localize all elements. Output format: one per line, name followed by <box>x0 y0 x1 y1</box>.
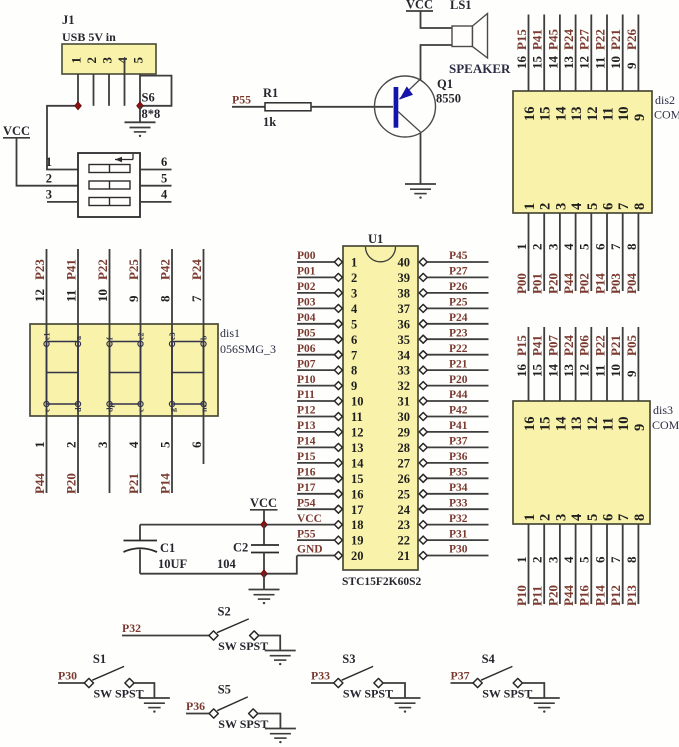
svg-text:35: 35 <box>398 333 411 347</box>
svg-text:9: 9 <box>624 370 639 377</box>
svg-text:S1: S1 <box>93 652 106 666</box>
svg-text:C1: C1 <box>160 541 175 555</box>
svg-text:P41: P41 <box>530 29 545 50</box>
svg-text:13: 13 <box>351 441 364 455</box>
svg-text:5: 5 <box>131 57 146 64</box>
svg-text:6: 6 <box>592 243 607 250</box>
svg-text:e2: e2 <box>137 332 146 340</box>
svg-text:e1: e1 <box>43 332 52 340</box>
svg-text:5: 5 <box>577 243 592 250</box>
svg-text:P15: P15 <box>297 451 316 463</box>
svg-text:P41: P41 <box>63 259 78 280</box>
svg-text:P36: P36 <box>186 699 205 713</box>
svg-text:5: 5 <box>351 317 357 331</box>
svg-text:18: 18 <box>351 518 364 532</box>
svg-text:5: 5 <box>161 172 167 186</box>
svg-text:10: 10 <box>616 107 632 122</box>
svg-text:7: 7 <box>616 514 632 521</box>
svg-text:e: e <box>43 408 52 412</box>
svg-text:P31: P31 <box>449 528 468 540</box>
svg-text:S2: S2 <box>218 605 231 619</box>
svg-text:33: 33 <box>398 364 411 378</box>
svg-text:36: 36 <box>398 317 411 331</box>
svg-text:P30: P30 <box>449 544 468 556</box>
svg-text:P27: P27 <box>449 266 468 278</box>
svg-text:39: 39 <box>398 271 411 285</box>
svg-text:29: 29 <box>398 426 411 440</box>
svg-text:SW SPST: SW SPST <box>94 687 144 701</box>
svg-text:P45: P45 <box>545 29 560 50</box>
svg-text:P22: P22 <box>592 335 607 356</box>
svg-text:9: 9 <box>126 295 141 302</box>
svg-text:9: 9 <box>632 114 648 121</box>
svg-text:11: 11 <box>592 57 607 69</box>
svg-text:P05: P05 <box>297 327 316 339</box>
svg-text:P34: P34 <box>449 482 468 494</box>
svg-text:10UF: 10UF <box>158 557 188 571</box>
svg-text:1: 1 <box>351 256 357 270</box>
svg-text:2: 2 <box>538 203 554 210</box>
svg-text:S4: S4 <box>482 652 496 666</box>
svg-text:P42: P42 <box>157 259 172 280</box>
svg-text:1k: 1k <box>263 115 276 129</box>
svg-text:14: 14 <box>553 417 569 432</box>
svg-text:P26: P26 <box>449 281 468 293</box>
svg-text:8550: 8550 <box>436 92 461 106</box>
svg-text:P25: P25 <box>126 259 141 280</box>
svg-text:VCC: VCC <box>406 0 433 12</box>
svg-text:P22: P22 <box>95 259 110 280</box>
svg-text:P20: P20 <box>545 585 560 606</box>
svg-text:8: 8 <box>624 556 639 563</box>
svg-text:P02: P02 <box>577 273 592 294</box>
svg-text:6: 6 <box>592 556 607 563</box>
svg-text:15: 15 <box>530 364 545 378</box>
svg-text:STC15F2K60S2: STC15F2K60S2 <box>342 576 421 588</box>
svg-text:J1: J1 <box>62 13 75 27</box>
svg-text:P44: P44 <box>32 473 47 494</box>
svg-text:3: 3 <box>46 188 52 202</box>
svg-text:SW SPST: SW SPST <box>482 687 532 701</box>
svg-text:P13: P13 <box>624 585 639 606</box>
svg-text:1: 1 <box>514 244 529 251</box>
svg-text:P23: P23 <box>449 327 468 339</box>
svg-text:P15: P15 <box>514 335 529 356</box>
svg-text:2: 2 <box>84 57 99 64</box>
svg-text:14: 14 <box>351 457 364 471</box>
svg-text:23: 23 <box>398 518 411 532</box>
svg-text:P21: P21 <box>449 358 468 370</box>
svg-text:P24: P24 <box>189 259 204 280</box>
svg-text:f: f <box>106 337 115 340</box>
svg-text:4: 4 <box>115 57 130 64</box>
svg-text:LS1: LS1 <box>450 0 472 12</box>
svg-text:40: 40 <box>398 256 411 270</box>
svg-text:P42: P42 <box>449 405 468 417</box>
svg-text:P24: P24 <box>561 29 576 50</box>
svg-text:3: 3 <box>100 57 115 64</box>
svg-text:P37: P37 <box>451 668 470 682</box>
svg-text:2: 2 <box>530 557 545 564</box>
svg-text:25: 25 <box>398 487 411 501</box>
svg-text:5: 5 <box>157 441 172 448</box>
svg-text:P10: P10 <box>514 585 529 606</box>
svg-text:1: 1 <box>69 57 84 64</box>
svg-text:P21: P21 <box>608 335 623 356</box>
svg-text:6: 6 <box>601 514 617 521</box>
svg-text:7: 7 <box>608 556 623 563</box>
svg-text:USB 5V in: USB 5V in <box>62 30 116 44</box>
svg-text:10: 10 <box>608 56 623 69</box>
svg-text:P44: P44 <box>561 273 576 294</box>
svg-text:P14: P14 <box>157 473 172 494</box>
svg-text:12: 12 <box>585 417 601 432</box>
svg-text:15: 15 <box>538 417 554 432</box>
svg-text:13: 13 <box>569 417 585 432</box>
svg-text:21: 21 <box>398 549 411 563</box>
svg-text:P03: P03 <box>297 297 316 309</box>
svg-text:26: 26 <box>398 472 411 486</box>
svg-text:1: 1 <box>522 514 538 521</box>
svg-text:1: 1 <box>32 442 47 449</box>
svg-text:P33: P33 <box>311 668 330 682</box>
svg-text:10: 10 <box>95 289 110 302</box>
svg-text:4: 4 <box>569 514 585 521</box>
svg-text:10: 10 <box>608 364 623 377</box>
svg-text:8: 8 <box>632 514 648 521</box>
svg-text:S5: S5 <box>218 683 231 697</box>
svg-text:dp: dp <box>106 403 115 412</box>
svg-text:13: 13 <box>561 364 576 378</box>
svg-text:P07: P07 <box>297 358 316 370</box>
svg-text:30: 30 <box>398 410 411 424</box>
svg-text:4: 4 <box>569 203 585 210</box>
svg-text:15: 15 <box>538 107 554 122</box>
svg-text:P20: P20 <box>449 374 468 386</box>
svg-text:24: 24 <box>398 503 411 517</box>
svg-text:16: 16 <box>351 487 364 501</box>
svg-text:P11: P11 <box>297 389 315 401</box>
svg-text:16: 16 <box>514 364 529 378</box>
svg-text:28: 28 <box>398 441 411 455</box>
svg-text:13: 13 <box>569 107 585 122</box>
svg-text:7: 7 <box>616 203 632 210</box>
svg-text:P14: P14 <box>592 585 607 606</box>
svg-text:12: 12 <box>351 426 364 440</box>
svg-text:P12: P12 <box>608 585 623 606</box>
svg-text:1: 1 <box>46 155 52 169</box>
svg-text:c: c <box>137 408 146 412</box>
svg-text:P41: P41 <box>530 335 545 356</box>
svg-text:7: 7 <box>608 243 623 250</box>
svg-text:34: 34 <box>398 348 411 362</box>
svg-text:8: 8 <box>632 203 648 210</box>
svg-text:b: b <box>200 335 209 340</box>
svg-text:19: 19 <box>351 534 364 548</box>
svg-text:8: 8 <box>157 295 172 302</box>
svg-text:12: 12 <box>585 107 601 122</box>
svg-text:P24: P24 <box>561 335 576 356</box>
svg-text:P00: P00 <box>297 250 316 262</box>
svg-text:4: 4 <box>561 243 576 250</box>
svg-text:P24: P24 <box>449 312 468 324</box>
svg-text:7: 7 <box>189 295 204 302</box>
svg-text:056SMG_3: 056SMG_3 <box>220 342 276 356</box>
svg-text:P27: P27 <box>577 29 592 50</box>
svg-text:3: 3 <box>545 556 560 563</box>
svg-text:22: 22 <box>398 534 411 548</box>
svg-text:P22: P22 <box>592 29 607 50</box>
svg-text:P23: P23 <box>32 259 47 280</box>
svg-text:P14: P14 <box>297 436 316 448</box>
svg-text:P05: P05 <box>624 335 639 356</box>
svg-text:P04: P04 <box>297 312 316 324</box>
svg-text:P44: P44 <box>561 585 576 606</box>
svg-text:10: 10 <box>351 395 364 409</box>
svg-text:6: 6 <box>601 203 617 210</box>
svg-text:31: 31 <box>398 395 411 409</box>
svg-text:P21: P21 <box>126 473 141 494</box>
svg-text:11: 11 <box>351 410 363 424</box>
svg-text:6: 6 <box>351 333 357 347</box>
svg-text:7: 7 <box>351 348 357 362</box>
svg-text:P15: P15 <box>514 29 529 50</box>
svg-text:P07: P07 <box>545 335 560 356</box>
svg-text:P30: P30 <box>58 668 77 682</box>
svg-text:5: 5 <box>577 556 592 563</box>
svg-text:P44: P44 <box>449 389 468 401</box>
svg-text:P45: P45 <box>449 250 468 262</box>
svg-text:GND: GND <box>297 544 323 556</box>
svg-text:Q1: Q1 <box>437 77 453 91</box>
svg-text:5: 5 <box>585 514 601 521</box>
svg-text:P14: P14 <box>592 273 607 294</box>
svg-text:SW SPST: SW SPST <box>218 639 268 653</box>
svg-text:1: 1 <box>514 557 529 564</box>
svg-text:14: 14 <box>553 107 569 122</box>
svg-text:P55: P55 <box>297 528 316 540</box>
svg-text:P12: P12 <box>297 405 316 417</box>
svg-text:13: 13 <box>561 56 576 70</box>
svg-text:2: 2 <box>63 442 78 449</box>
svg-text:P16: P16 <box>297 467 316 479</box>
svg-text:12: 12 <box>32 289 47 302</box>
svg-text:P06: P06 <box>297 343 316 355</box>
svg-text:P11: P11 <box>530 586 545 606</box>
svg-text:14: 14 <box>545 364 560 378</box>
svg-text:8*8: 8*8 <box>142 107 161 121</box>
svg-text:37: 37 <box>398 302 411 316</box>
svg-text:U1: U1 <box>368 232 383 246</box>
svg-text:P13: P13 <box>297 420 316 432</box>
svg-text:11: 11 <box>592 365 607 377</box>
svg-text:6: 6 <box>161 155 167 169</box>
svg-text:COM: COM <box>654 108 679 122</box>
svg-text:P00: P00 <box>514 273 529 294</box>
svg-text:9: 9 <box>624 62 639 69</box>
svg-text:10: 10 <box>616 417 632 432</box>
svg-text:32: 32 <box>398 379 411 393</box>
svg-text:S3: S3 <box>342 652 355 666</box>
svg-text:3: 3 <box>351 287 357 301</box>
svg-text:e3: e3 <box>168 332 177 340</box>
svg-text:COM: COM <box>652 418 679 432</box>
svg-text:3: 3 <box>95 441 110 448</box>
svg-text:12: 12 <box>577 56 592 69</box>
svg-text:a: a <box>74 336 83 340</box>
svg-text:P25: P25 <box>449 297 468 309</box>
svg-text:P37: P37 <box>449 436 468 448</box>
svg-text:P01: P01 <box>297 266 316 278</box>
svg-text:dis2: dis2 <box>655 93 675 107</box>
svg-text:3: 3 <box>545 243 560 250</box>
svg-text:d: d <box>74 407 83 412</box>
svg-text:3: 3 <box>553 514 569 521</box>
svg-text:SPEAKER: SPEAKER <box>449 61 511 76</box>
svg-text:SW SPST: SW SPST <box>343 687 393 701</box>
svg-text:8: 8 <box>624 243 639 250</box>
svg-text:P06: P06 <box>577 335 592 356</box>
svg-text:9: 9 <box>351 379 357 393</box>
svg-text:P41: P41 <box>449 420 468 432</box>
svg-text:P20: P20 <box>545 273 560 294</box>
svg-text:14: 14 <box>545 56 560 70</box>
svg-text:9: 9 <box>632 424 648 431</box>
svg-text:P02: P02 <box>297 281 316 293</box>
svg-text:P16: P16 <box>577 585 592 606</box>
svg-text:4: 4 <box>126 441 141 448</box>
svg-text:12: 12 <box>577 364 592 377</box>
svg-text:4: 4 <box>351 302 358 316</box>
svg-text:11: 11 <box>601 417 617 431</box>
svg-text:P35: P35 <box>449 467 468 479</box>
svg-text:P36: P36 <box>449 451 468 463</box>
svg-text:VCC: VCC <box>250 496 277 510</box>
svg-text:2: 2 <box>538 514 554 521</box>
svg-text:P01: P01 <box>530 273 545 294</box>
svg-text:C2: C2 <box>233 541 248 555</box>
svg-text:11: 11 <box>601 107 617 121</box>
svg-text:VCC: VCC <box>297 513 322 525</box>
svg-text:dis3: dis3 <box>653 403 673 417</box>
svg-text:15: 15 <box>530 56 545 70</box>
svg-text:2: 2 <box>351 271 357 285</box>
svg-text:16: 16 <box>522 417 538 432</box>
svg-text:4: 4 <box>561 556 576 563</box>
svg-text:2: 2 <box>46 172 52 186</box>
svg-text:SW SPST: SW SPST <box>218 717 268 731</box>
svg-text:P20: P20 <box>63 473 78 494</box>
svg-text:8: 8 <box>351 364 357 378</box>
svg-text:16: 16 <box>514 56 529 70</box>
svg-text:27: 27 <box>398 457 411 471</box>
svg-text:15: 15 <box>351 472 364 486</box>
svg-text:3: 3 <box>553 203 569 210</box>
svg-text:VCC: VCC <box>3 124 30 138</box>
svg-text:20: 20 <box>351 549 364 563</box>
svg-text:dis1: dis1 <box>220 326 240 340</box>
svg-text:P04: P04 <box>624 273 639 294</box>
svg-text:R1: R1 <box>263 86 278 100</box>
svg-text:104: 104 <box>217 557 237 571</box>
svg-text:g: g <box>168 408 177 412</box>
svg-text:5: 5 <box>585 203 601 210</box>
svg-text:P21: P21 <box>608 29 623 50</box>
svg-text:6: 6 <box>189 441 204 448</box>
svg-text:11: 11 <box>63 290 78 302</box>
svg-text:P22: P22 <box>449 343 468 355</box>
svg-text:P55: P55 <box>232 93 251 107</box>
svg-text:4: 4 <box>161 188 168 202</box>
svg-text:P17: P17 <box>297 482 316 494</box>
svg-text:P54: P54 <box>297 497 316 509</box>
svg-text:P32: P32 <box>449 513 468 525</box>
svg-text:2: 2 <box>530 244 545 251</box>
svg-text:38: 38 <box>398 287 411 301</box>
svg-text:16: 16 <box>522 107 538 122</box>
svg-text:P33: P33 <box>449 497 468 509</box>
svg-text:ne: ne <box>200 404 209 412</box>
svg-text:S6: S6 <box>142 91 155 105</box>
svg-text:P10: P10 <box>297 374 316 386</box>
svg-text:P03: P03 <box>608 273 623 294</box>
svg-text:P26: P26 <box>624 29 639 50</box>
svg-text:1: 1 <box>522 203 538 210</box>
svg-text:P32: P32 <box>122 621 141 635</box>
svg-text:17: 17 <box>351 503 364 517</box>
